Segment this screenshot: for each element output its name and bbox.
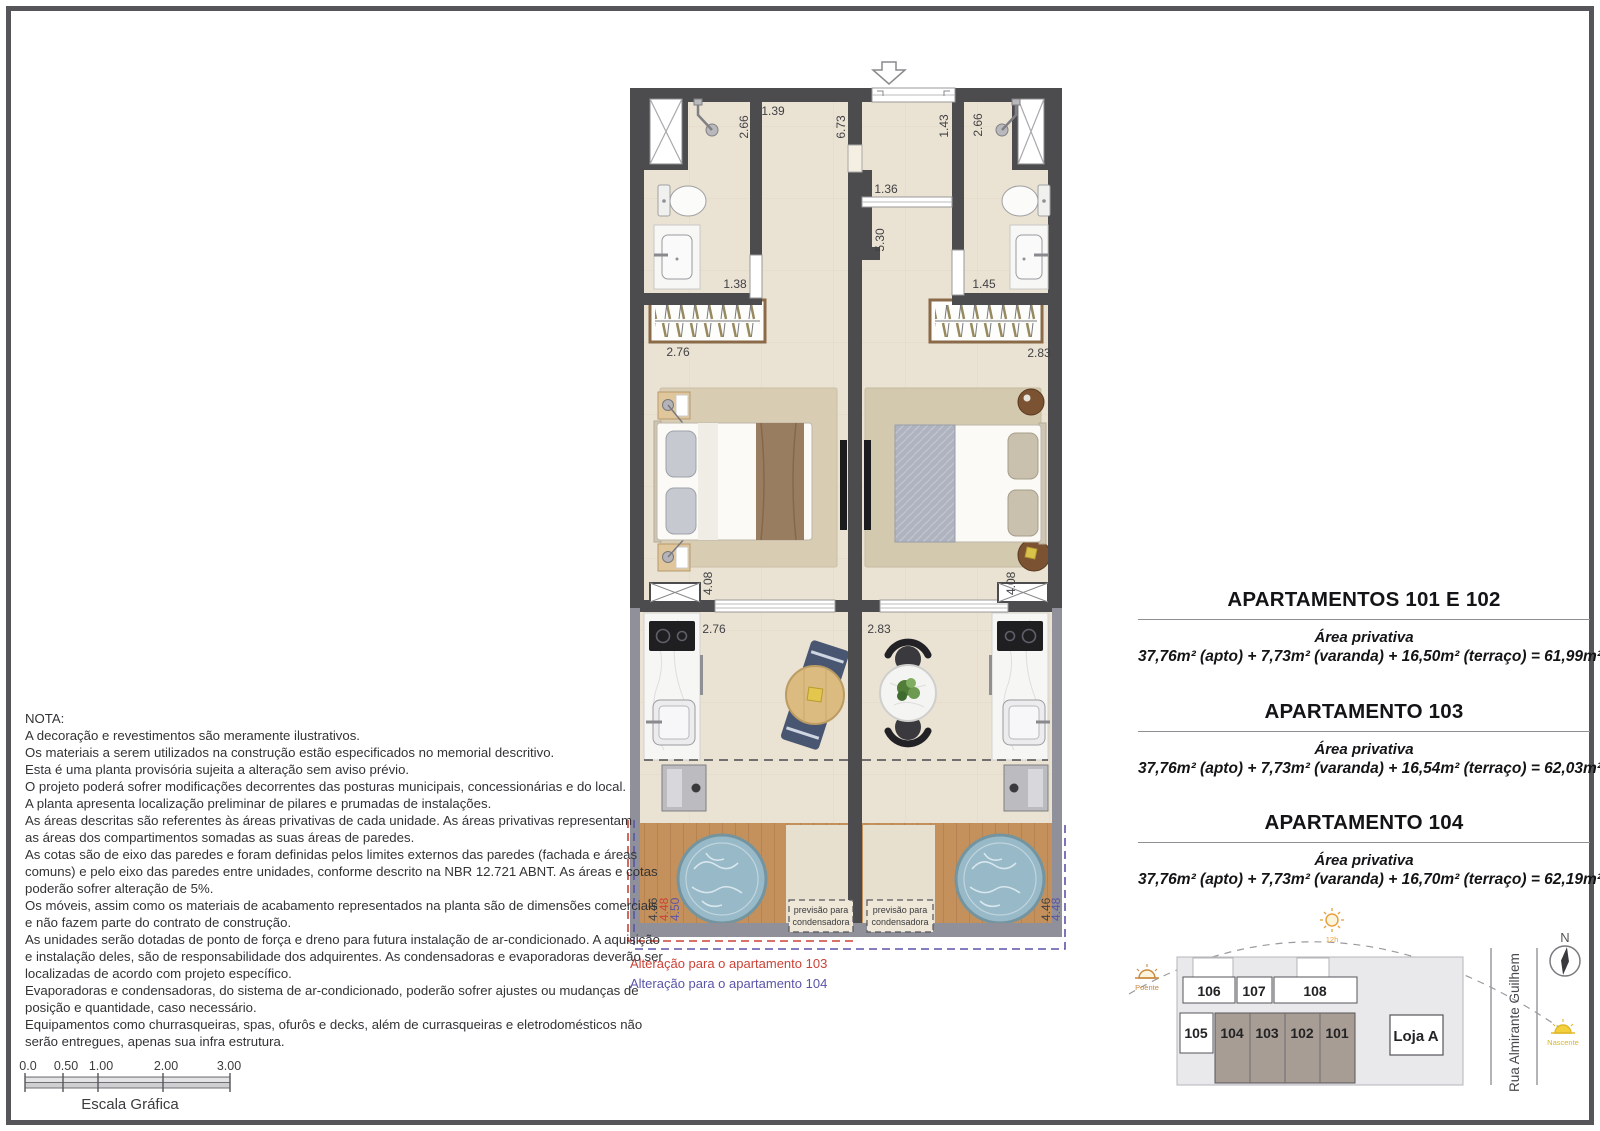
key-plan-units-top: 106 107 108 [1183,977,1357,1003]
note-line: Equipamentos como churrasqueiras, spas, … [25,1016,615,1033]
svg-text:1.38: 1.38 [723,277,747,291]
note-line: poderão sofrer alteração de 5%. [25,880,615,897]
toilet-right [1002,185,1050,216]
svg-text:4.08: 4.08 [701,571,715,595]
svg-text:2.76: 2.76 [666,345,690,359]
svg-text:1.39: 1.39 [761,104,785,118]
apartment-title: APARTAMENTO 104 [1138,811,1590,835]
note-line: localizadas de acordo com projeto especí… [25,965,615,982]
tv-left [840,440,847,530]
divider [1138,731,1590,732]
note-line: As cotas são de eixo das paredes e foram… [25,846,615,863]
apartment-info-104: APARTAMENTO 104 Área privativa 37,76m² (… [1138,811,1590,889]
hot-tub-left [678,835,766,923]
divider [1138,619,1590,620]
svg-text:104: 104 [1220,1025,1244,1041]
notes: NOTA: A decoração e revestimentos são me… [25,710,615,1050]
kitchen-right [989,613,1050,760]
svg-text:102: 102 [1290,1025,1314,1041]
svg-text:1.36: 1.36 [874,182,898,196]
scale-tick-label: 0.0 [19,1059,36,1073]
shop-label: Loja A [1393,1028,1438,1045]
wardrobe-right [930,300,1042,342]
note-line: Os materiais a serem utilizados na const… [25,744,615,761]
divider [1138,842,1590,843]
kitchen-left [644,613,703,760]
alteration-104-label: Alteração para o apartamento 104 [630,976,827,991]
svg-text:condensadora: condensadora [792,917,849,927]
note-line: comuns) e pelo eixo das paredes entre un… [25,863,615,880]
svg-text:105: 105 [1184,1025,1208,1041]
svg-text:2.66: 2.66 [971,113,985,137]
area-label: Área privativa [1138,629,1590,646]
note-line: Esta é uma planta provisória sujeita a a… [25,761,615,778]
area-formula: 37,76m² (apto) + 7,73m² (varanda) + 16,5… [1138,760,1590,778]
svg-text:12h: 12h [1326,935,1339,944]
svg-text:Nascente: Nascente [1547,1038,1579,1047]
scale-tick-label: 2.00 [154,1059,178,1073]
svg-text:previsão para: previsão para [873,905,928,915]
condenser-provision-right: previsão para condensadora [867,900,933,932]
scale-caption: Escala Gráfica [81,1096,179,1113]
svg-text:1.43: 1.43 [937,114,951,138]
notes-title: NOTA: [25,710,615,727]
street-name: Rua Almirante Guilhem [1507,953,1522,1092]
shaft-left [650,583,700,602]
note-line: As unidades serão dotadas de ponto de fo… [25,931,615,948]
wardrobe-left [650,300,765,342]
scale-tick-label: 0.50 [54,1059,78,1073]
note-line: posição e quantidade, caso necessário. [25,999,615,1016]
vanity-right [1010,225,1048,289]
svg-text:2.83: 2.83 [867,622,891,636]
tv-right [864,440,871,530]
note-line: Evaporadoras e condensadoras, do sistema… [25,982,615,999]
note-line: e instalação deles, são de responsabilid… [25,948,615,965]
apartment-title: APARTAMENTOS 101 E 102 [1138,588,1590,612]
svg-text:4.48: 4.48 [1049,897,1063,921]
svg-text:108: 108 [1303,983,1327,999]
street: Rua Almirante Guilhem [1491,948,1537,1092]
note-line: as áreas dos compartimentos somadas as s… [25,829,615,846]
svg-text:106: 106 [1197,983,1221,999]
dining-right [880,642,936,744]
scale-tick-label: 3.00 [217,1059,241,1073]
svg-text:5.30: 5.30 [873,228,887,252]
toilet-left [658,185,706,216]
svg-text:4.08: 4.08 [1004,571,1018,595]
condenser-left [662,765,706,811]
svg-text:previsão para: previsão para [794,905,849,915]
sun-east-icon: Nascente [1547,1019,1579,1047]
floor-plan: previsão para condensadora previsão para… [618,55,1070,995]
vanity-left [654,225,700,289]
svg-text:1.45: 1.45 [972,277,996,291]
svg-text:2.83: 2.83 [1027,346,1051,360]
svg-text:107: 107 [1242,983,1266,999]
condenser-right [1004,765,1048,811]
svg-text:2.76: 2.76 [702,622,726,636]
note-line: As áreas descritas são referentes às áre… [25,812,615,829]
sun-noon-icon: 12h [1320,908,1344,944]
sun-west-icon: Poente [1135,964,1159,992]
apartment-title: APARTAMENTO 103 [1138,700,1590,724]
svg-text:condensadora: condensadora [871,917,928,927]
apartment-info-103: APARTAMENTO 103 Área privativa 37,76m² (… [1138,700,1590,778]
note-line: A planta apresenta localização prelimina… [25,795,615,812]
area-label: Área privativa [1138,852,1590,869]
area-formula: 37,76m² (apto) + 7,73m² (varanda) + 16,5… [1138,648,1590,666]
svg-text:Poente: Poente [1135,983,1159,992]
svg-text:2.66: 2.66 [737,115,751,139]
note-line: O projeto poderá sofrer modificações dec… [25,778,615,795]
north-compass-icon: N [1550,930,1580,976]
site-key-plan: 106 107 108 105 104 103 102 101 Loja A R… [1095,902,1595,1117]
entry-arrow-icon [873,62,905,84]
note-line: A decoração e revestimentos são merament… [25,727,615,744]
svg-text:6.73: 6.73 [834,115,848,139]
svg-text:101: 101 [1325,1025,1349,1041]
area-formula: 37,76m² (apto) + 7,73m² (varanda) + 16,7… [1138,871,1590,889]
note-line: e não fazem parte do contrato de constru… [25,914,615,931]
svg-text:103: 103 [1255,1025,1279,1041]
area-label: Área privativa [1138,741,1590,758]
apartment-info-101-102: APARTAMENTOS 101 E 102 Área privativa 37… [1138,588,1590,666]
graphic-scale: 0.0 0.50 1.00 2.00 3.00 Escala Gráfica [14,1056,284,1116]
note-line: serão entregues, apenas sua infra estrut… [25,1033,615,1050]
hot-tub-right [956,835,1044,923]
svg-text:4.50: 4.50 [668,897,682,921]
note-line: Os móveis, assim como os materiais de ac… [25,897,615,914]
condenser-provision-left: previsão para condensadora [789,900,853,932]
scale-tick-label: 1.00 [89,1059,113,1073]
svg-text:N: N [1560,930,1569,945]
